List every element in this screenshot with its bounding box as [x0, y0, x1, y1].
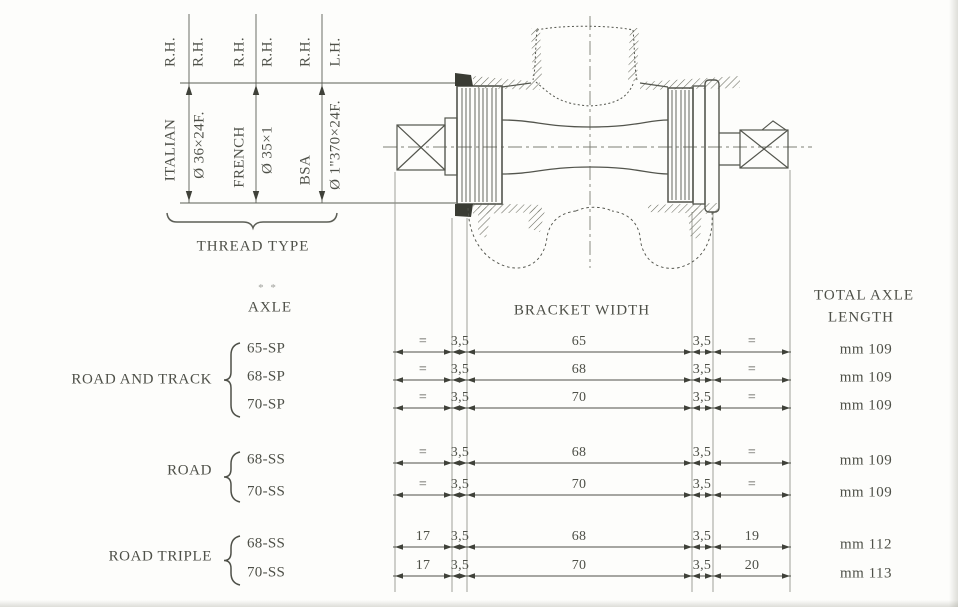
dimension-value: =: [419, 362, 427, 378]
dimension-value: 68: [572, 529, 587, 545]
axle-code: 68-SS: [247, 536, 285, 553]
group-brace: [224, 452, 240, 502]
group-brace: [224, 343, 240, 417]
dimension-value: =: [748, 362, 756, 378]
dimension-value: 68: [572, 362, 587, 378]
dimension-row: [393, 460, 791, 465]
dimension-value: =: [748, 445, 756, 461]
dimension-value: 3,5: [451, 390, 469, 406]
dimension-value: 19: [745, 529, 760, 545]
axle-code: 70-SS: [247, 484, 285, 501]
total-axle-length-header-line2: LENGTH: [828, 310, 894, 327]
thread-type-bsa-spec: Ø 1"370×24F.: [328, 100, 345, 190]
thread-type-italian: ITALIAN: [163, 119, 180, 181]
dimension-value: 17: [416, 529, 431, 545]
dimension-value: =: [419, 390, 427, 406]
axle-left-collar: [445, 118, 457, 175]
scan-edge-shadow-bottom: [0, 600, 958, 607]
axle-code: 70-SS: [247, 565, 285, 582]
group-brace: [224, 536, 240, 585]
dimension-value: 3,5: [693, 477, 711, 493]
dimension-value: 20: [745, 558, 760, 574]
dimension-value: 3,5: [451, 558, 469, 574]
total-length-value: mm 109: [840, 453, 893, 470]
thread-type-french-spec: Ø 35×1: [260, 126, 277, 174]
dimension-row: [393, 573, 791, 578]
dimension-value: =: [419, 445, 427, 461]
thread-type-bsa: BSA: [298, 155, 315, 185]
axle-end-notch: [762, 121, 786, 130]
thread-type-underbrace: [167, 213, 337, 228]
dimension-value: 3,5: [693, 334, 711, 350]
total-length-value: mm 109: [840, 342, 893, 359]
dimension-rows: [224, 343, 791, 585]
total-axle-length-header-line1: TOTAL AXLE: [814, 288, 914, 305]
dimension-value: 3,5: [693, 558, 711, 574]
lower-hatch-right: [688, 207, 702, 240]
dimension-value: 68: [572, 445, 587, 461]
dimension-row: [393, 492, 791, 497]
total-length-value: mm 109: [840, 398, 893, 415]
dimension-value: =: [419, 334, 427, 350]
dimension-value: 3,5: [693, 445, 711, 461]
lower-hatch-left: [478, 206, 492, 238]
hand-label-italian-spec: R.H.: [191, 37, 208, 67]
dimension-value: 3,5: [451, 334, 469, 350]
dimension-value: =: [748, 390, 756, 406]
thread-type-caption: THREAD TYPE: [197, 239, 310, 256]
lower-hatch-center: [528, 206, 545, 232]
dimension-row: [393, 544, 791, 549]
dimension-value: 70: [572, 558, 587, 574]
scan-edge-shadow-right: [949, 0, 958, 607]
bottom-bracket-drawing: [383, 16, 812, 268]
total-length-value: mm 109: [840, 370, 893, 387]
left-lockring-tab-top: [455, 73, 473, 86]
total-length-value: mm 109: [840, 485, 893, 502]
dimension-value: 65: [572, 334, 587, 350]
thread-type-italian-spec: Ø 36×24F.: [192, 111, 209, 179]
left-lockring-tab-bottom: [455, 204, 473, 217]
dimension-value: 3,5: [451, 362, 469, 378]
dimension-value: 3,5: [693, 390, 711, 406]
dimension-value: 3,5: [451, 529, 469, 545]
smudge-mark: * *: [258, 282, 278, 294]
scanned-catalog-page: R.H. R.H. R.H. R.H. R.H. L.H. ITALIAN Ø …: [0, 0, 958, 607]
hand-label-italian: R.H.: [163, 37, 180, 67]
total-length-value: mm 113: [840, 566, 892, 583]
dimension-value: 70: [572, 477, 587, 493]
dimension-row: [393, 405, 791, 410]
axle-group-label: ROAD TRIPLE: [109, 549, 212, 566]
hand-label-french: R.H.: [232, 37, 249, 67]
total-length-value: mm 112: [840, 537, 892, 554]
hand-label-bsa-spec: L.H.: [328, 37, 345, 66]
dimension-row: [393, 377, 791, 382]
axle-code: 68-SP: [247, 369, 285, 386]
dimension-value: 3,5: [693, 529, 711, 545]
right-flange: [705, 80, 719, 212]
dimension-value: 17: [416, 558, 431, 574]
left-cup-threads: [462, 88, 496, 202]
hand-label-bsa: R.H.: [298, 37, 315, 67]
dimension-value: 3,5: [693, 362, 711, 378]
axle-group-label: ROAD AND TRACK: [71, 372, 212, 389]
dimension-value: 70: [572, 390, 587, 406]
bracket-width-header: BRACKET WIDTH: [514, 303, 650, 320]
right-cup-threads: [672, 90, 689, 200]
axle-code: 65-SP: [247, 341, 285, 358]
dimension-value: =: [748, 477, 756, 493]
axle-code: 68-SS: [247, 452, 285, 469]
thread-type-french: FRENCH: [232, 126, 249, 188]
axle-right-square-end: [719, 121, 788, 168]
axle-left-square-end: [397, 118, 457, 175]
left-cup: [455, 73, 502, 217]
dimension-value: =: [748, 334, 756, 350]
seat-tube-socket: [533, 26, 637, 106]
dimension-value: 3,5: [451, 445, 469, 461]
axle-column-header: AXLE: [248, 300, 292, 317]
hand-label-french-spec: R.H.: [260, 37, 277, 67]
dimension-value: 3,5: [451, 477, 469, 493]
right-lockring: [693, 86, 705, 204]
axle-group-label: ROAD: [167, 463, 212, 480]
dimension-row: [393, 349, 791, 354]
right-cup: [668, 80, 719, 212]
axle-code: 70-SP: [247, 397, 285, 414]
dimension-value: =: [419, 477, 427, 493]
